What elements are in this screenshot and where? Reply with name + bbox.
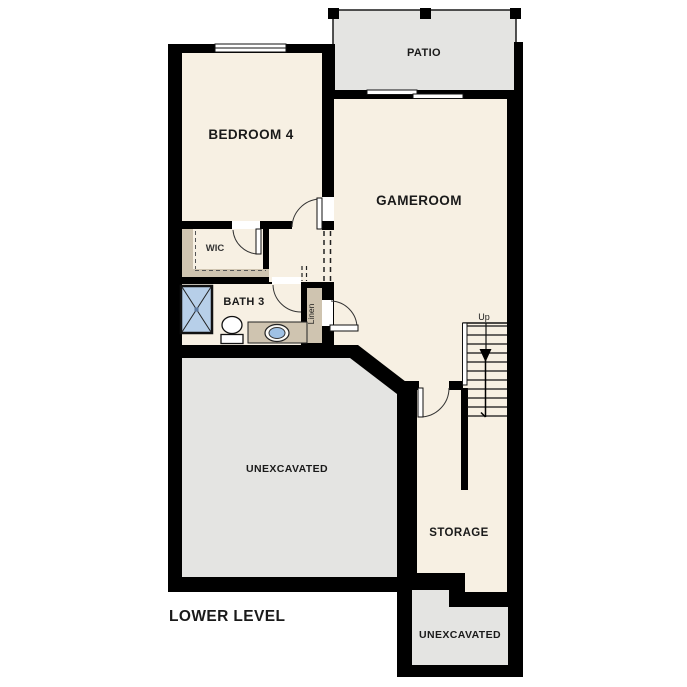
bedroom-door-leaf (317, 198, 322, 229)
storage-bottom-wall-right (465, 592, 508, 607)
plan-title: LOWER LEVEL (169, 608, 285, 625)
wic-floor (193, 229, 263, 269)
bath-door-opening (272, 277, 301, 284)
stair-left-rail (463, 323, 468, 385)
gameroom-hall-door-leaf (330, 325, 358, 331)
linen-top-wall (301, 282, 333, 288)
storage-door-stub-right (449, 381, 463, 390)
stairs-up-label: Up (478, 312, 490, 322)
sliding-door-panel-2 (413, 94, 463, 99)
floorplan-drawing: BEDROOM 4 PATIO GAMEROOM WIC BATH 3 Line… (0, 0, 687, 687)
unexcavated-main-label: UNEXCAVATED (246, 463, 328, 475)
storage-label: STORAGE (429, 527, 488, 539)
gameroom-label: GAMEROOM (376, 193, 462, 208)
bath3-label: BATH 3 (223, 296, 264, 308)
storage-door-stub-left (403, 381, 419, 390)
patio-post-middle (420, 8, 431, 19)
sink-basin (269, 328, 285, 339)
hall-opening-floor (322, 230, 334, 282)
toilet-tank (221, 335, 243, 344)
unexcavated-lower-label: UNEXCAVATED (419, 629, 501, 641)
sliding-door-panel-1 (367, 90, 417, 95)
wic-door-opening (232, 221, 260, 229)
storage-door-leaf (418, 388, 423, 417)
wic-label: WIC (206, 243, 225, 254)
hall-floor (269, 229, 322, 282)
patio-right-wall (514, 42, 523, 94)
wic-door-leaf (256, 229, 261, 254)
patio-label: PATIO (407, 47, 441, 59)
toilet-bowl (222, 317, 242, 334)
storage-left-wall (403, 385, 417, 577)
patio-post-right (510, 8, 521, 19)
storage-bottom-step-wall (449, 573, 465, 607)
bedroom-door-opening (322, 197, 334, 221)
patio-post-left (328, 8, 339, 19)
linen-hall-door-opening (322, 300, 333, 326)
floorplan-page: BEDROOM 4 PATIO GAMEROOM WIC BATH 3 Line… (0, 0, 687, 687)
linen-label: Linen (306, 303, 316, 324)
shower-drain (195, 308, 199, 312)
bedroom4-label: BEDROOM 4 (208, 127, 293, 142)
under-stair-wall (461, 388, 468, 490)
